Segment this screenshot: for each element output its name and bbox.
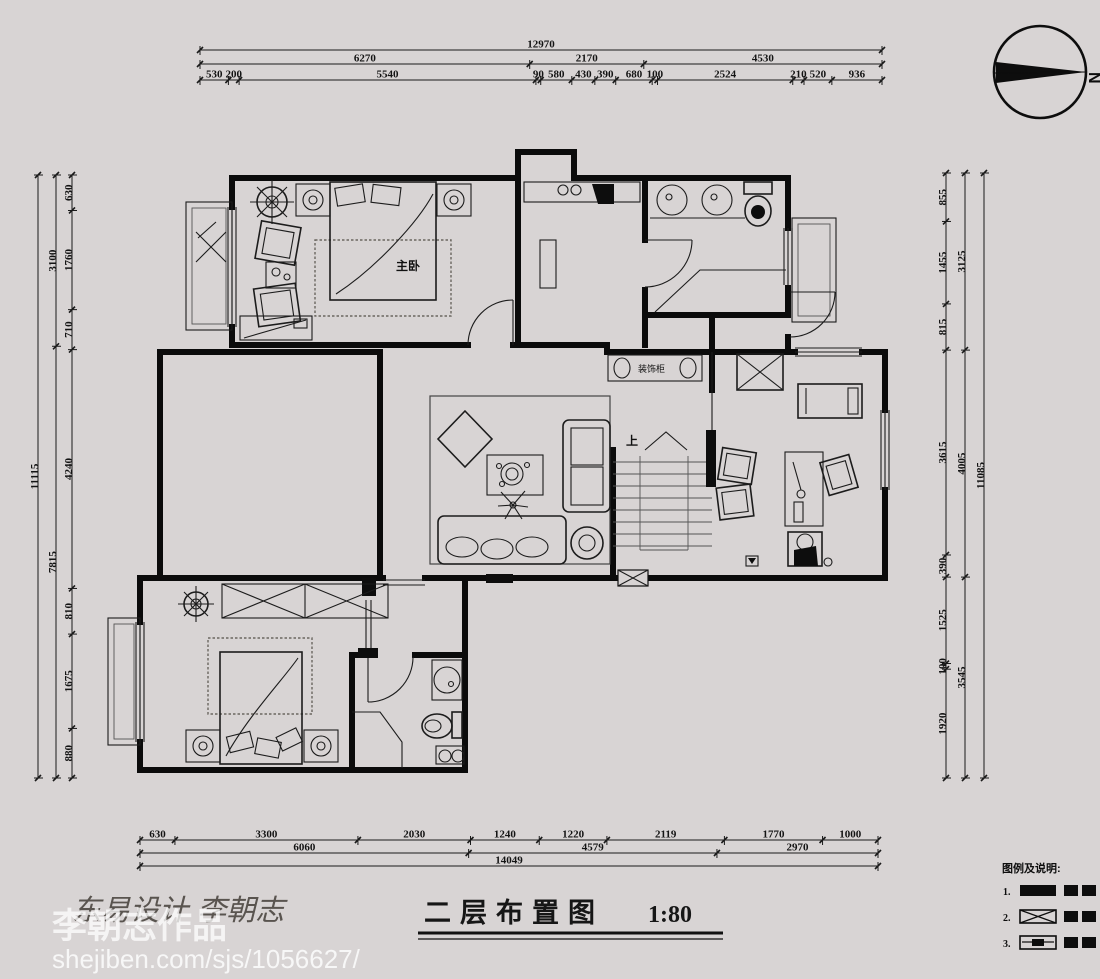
svg-text:1220: 1220 (562, 829, 585, 841)
svg-text:3100: 3100 (47, 249, 59, 272)
svg-text:4530: 4530 (752, 53, 775, 65)
closet-room (524, 182, 640, 288)
svg-text:6060: 6060 (293, 842, 316, 854)
svg-text:1920: 1920 (937, 712, 949, 735)
legend-num-3: 3. (1003, 939, 1011, 950)
balcony-lower (108, 618, 144, 745)
dim-chain-bottom-detail: 6303300203012401220211917701000 (137, 829, 881, 846)
svg-text:3545: 3545 (956, 666, 968, 689)
window-study-right (881, 410, 889, 490)
svg-text:580: 580 (548, 69, 565, 81)
svg-text:390: 390 (937, 557, 949, 574)
shaft-under-stairs (618, 570, 648, 586)
svg-text:430: 430 (575, 69, 592, 81)
svg-text:880: 880 (63, 744, 75, 761)
svg-text:2970: 2970 (786, 842, 809, 854)
dim-chain-top-total: 12970 (197, 39, 885, 56)
legend-symbol-x-box (1020, 910, 1056, 923)
legend: 图例及说明: 1. 2. 3. (1002, 861, 1096, 950)
svg-text:7815: 7815 (47, 551, 59, 574)
svg-text:90: 90 (533, 69, 545, 81)
dim-chain-left-mid: 31007815 (47, 172, 61, 781)
legend-symbol-hatched-bar (1020, 936, 1056, 949)
balcony-master (186, 202, 236, 330)
bathroom-lower (352, 660, 464, 768)
stairs-up-label: 上 (626, 433, 638, 448)
window-study-top (795, 348, 862, 356)
svg-text:6270: 6270 (354, 53, 377, 65)
door-balcony-right (790, 292, 835, 337)
dim-chain-right-detail: 8551455815361539015251001920 (937, 170, 951, 781)
bedroom-lower (178, 584, 388, 764)
svg-text:630: 630 (63, 184, 75, 201)
sliding-door-anteroom (383, 580, 425, 585)
svg-text:4579: 4579 (582, 842, 605, 854)
svg-text:5540: 5540 (377, 69, 400, 81)
svg-text:3300: 3300 (255, 829, 278, 841)
svg-text:3615: 3615 (937, 441, 949, 464)
exterior-interior-walls (140, 152, 885, 770)
svg-text:1525: 1525 (937, 609, 949, 632)
svg-text:100: 100 (647, 69, 664, 81)
north-letter: N (1085, 72, 1100, 84)
svg-text:810: 810 (63, 603, 75, 620)
floorplan-canvas: 12970 627021704530 530200554090580430390… (0, 0, 1100, 979)
svg-text:1455: 1455 (937, 251, 949, 274)
svg-text:936: 936 (849, 69, 866, 81)
svg-text:1675: 1675 (63, 670, 75, 693)
svg-text:815: 815 (937, 318, 949, 335)
svg-text:2119: 2119 (655, 829, 677, 841)
master-bedroom-label: 主卧 (396, 258, 420, 273)
balcony-right (784, 218, 836, 322)
svg-text:1770: 1770 (762, 829, 785, 841)
svg-text:1000: 1000 (839, 829, 862, 841)
title-block: 二层布置图 1:80 (418, 898, 723, 939)
sitting-area (430, 396, 610, 583)
dim-chain-top-detail: 5302005540905804303906801002524210520936 (197, 69, 885, 86)
svg-text:390: 390 (597, 69, 614, 81)
watermark-url: shejiben.com/sjs/1056627/ (52, 944, 361, 974)
svg-text:11085: 11085 (975, 462, 987, 489)
dim-chain-right-total: 11085 (975, 170, 989, 781)
dim-chain-left-total: 11115 (29, 172, 43, 781)
study-room (716, 384, 862, 566)
svg-text:4005: 4005 (956, 452, 968, 475)
door-master-bedroom (468, 300, 513, 345)
svg-text:710: 710 (63, 321, 75, 338)
legend-header: 图例及说明: (1002, 861, 1061, 875)
dim-chain-left-detail: 630176071042408101675880 (63, 172, 77, 781)
watermark-name: 李朝志作品 (52, 907, 227, 946)
svg-text:680: 680 (626, 69, 643, 81)
decor-cabinet: 装饰柜 (608, 355, 702, 381)
svg-text:12970: 12970 (527, 39, 555, 51)
ceiling-fan-icon (250, 180, 294, 224)
svg-text:1240: 1240 (494, 829, 517, 841)
north-arrow: N (994, 26, 1100, 118)
svg-text:3125: 3125 (956, 250, 968, 273)
master-bedroom: 主卧 (240, 180, 471, 340)
svg-text:530: 530 (206, 69, 223, 81)
door-bathroom-lower (368, 657, 413, 702)
shaft-study (737, 354, 783, 390)
ceiling-fan-icon-2 (178, 586, 214, 622)
legend-num-1: 1. (1003, 887, 1011, 898)
svg-text:2524: 2524 (714, 69, 737, 81)
svg-text:200: 200 (226, 69, 243, 81)
svg-text:1760: 1760 (63, 249, 75, 272)
door-bathroom-top (645, 240, 692, 287)
svg-text:14049: 14049 (495, 855, 523, 867)
svg-text:100: 100 (937, 658, 949, 675)
dim-chain-right-mid: 312540053545 (956, 170, 970, 781)
svg-text:11115: 11115 (29, 463, 41, 489)
decor-cabinet-label: 装饰柜 (638, 363, 665, 374)
svg-text:2170: 2170 (576, 53, 599, 65)
dim-chain-bottom-total: 14049 (137, 855, 881, 872)
drawing-title: 二层布置图 (424, 898, 604, 928)
svg-text:855: 855 (937, 188, 949, 205)
dim-chain-top-mid: 627021704530 (197, 53, 885, 70)
svg-text:210: 210 (790, 69, 807, 81)
svg-text:2030: 2030 (403, 829, 426, 841)
svg-text:520: 520 (810, 69, 827, 81)
drawing-scale: 1:80 (648, 902, 692, 928)
bathroom-top (650, 182, 786, 312)
svg-text:4240: 4240 (63, 458, 75, 481)
legend-num-2: 2. (1003, 913, 1011, 924)
staircase: 上 (613, 352, 716, 550)
legend-symbol-solid-wall (1020, 885, 1056, 896)
svg-text:630: 630 (149, 829, 166, 841)
